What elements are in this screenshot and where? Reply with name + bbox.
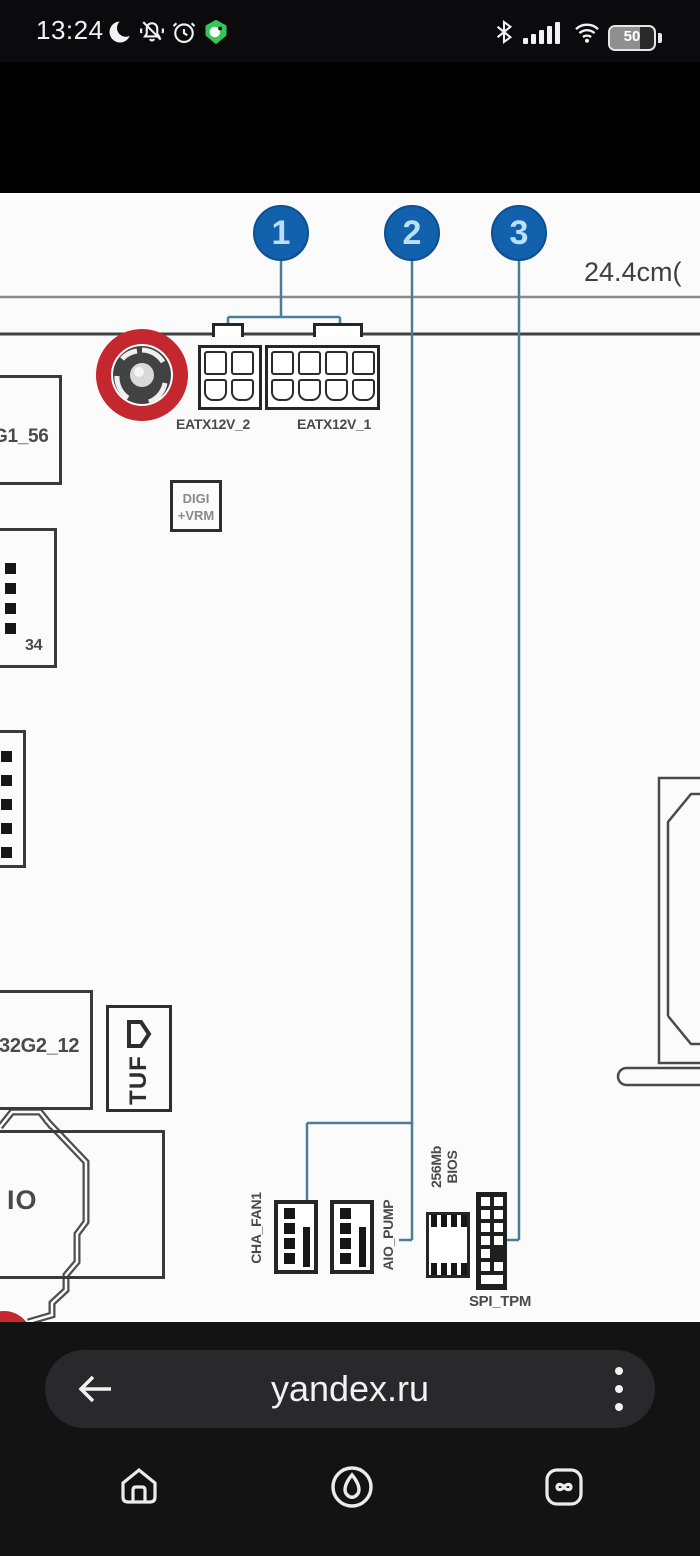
usb-header-top-label: G1_56	[0, 426, 49, 448]
usb-header-bottom-label: 32G2_12	[0, 1035, 79, 1058]
usb-header-bottom-box: 32G2_12	[0, 990, 93, 1110]
digi-vrm-chip: DIGI +VRM	[170, 480, 222, 532]
home-button-icon[interactable]	[115, 1463, 163, 1511]
menu-kebab-icon[interactable]	[615, 1367, 623, 1411]
bios-label-line2: BIOS	[444, 1136, 460, 1198]
webpage-motherboard-diagram: 1 2 3 24.4cm( EATX12V_2 EATX12V	[0, 193, 700, 1322]
eatx12v-1-label: EATX12V_1	[281, 416, 387, 432]
callout-3: 3	[491, 205, 547, 261]
battery-nub	[658, 33, 662, 43]
battery-icon: 50	[608, 25, 656, 51]
tuf-shield-icon	[126, 1019, 152, 1049]
digi-vrm-label-line1: DIGI	[173, 490, 219, 507]
browser-chrome: yandex.ru	[0, 1322, 700, 1556]
usb-header-mid-label: 34	[25, 637, 42, 655]
spi-tpm-label: SPI_TPM	[452, 1293, 548, 1310]
fan-badge-icon	[96, 329, 188, 421]
pcie-slot-outline	[618, 778, 700, 1085]
bios-label-line1: 256Mb	[428, 1136, 444, 1198]
battery-percent: 50	[610, 28, 654, 45]
wifi-icon	[570, 18, 604, 46]
yandex-browser-button-icon[interactable]	[328, 1463, 376, 1511]
tuf-logo-box: TUF	[106, 1005, 172, 1112]
do-not-disturb-moon-icon	[106, 18, 134, 46]
call-protect-app-icon	[202, 18, 230, 46]
audio-io-label: IO	[7, 1185, 38, 1216]
mute-bell-icon	[138, 18, 166, 46]
url-bar[interactable]: yandex.ru	[45, 1350, 655, 1428]
digi-vrm-label-line2: +VRM	[173, 507, 219, 524]
alarm-clock-icon	[170, 18, 198, 46]
tuf-logo-text: TUF	[125, 1055, 153, 1105]
status-bar: 13:24	[0, 0, 700, 62]
system-nav-bar	[0, 1445, 700, 1556]
callout-2: 2	[384, 205, 440, 261]
phone-screen: 13:24	[0, 0, 700, 1556]
front-panel-header-box	[0, 730, 26, 868]
url-text[interactable]: yandex.ru	[45, 1368, 655, 1410]
eatx12v-2-label: EATX12V_2	[160, 416, 266, 432]
bluetooth-icon	[490, 18, 518, 46]
bios-chip-label: 256Mb BIOS	[428, 1136, 460, 1198]
cellular-signal-icon	[522, 18, 562, 46]
partial-fan-badge	[0, 1311, 32, 1322]
cha-fan1-label: CHA_FAN1	[248, 1182, 264, 1274]
board-width-label: 24.4cm(	[584, 257, 700, 288]
usb-header-mid-box: 34	[0, 528, 57, 668]
tabs-button-icon[interactable]	[540, 1463, 588, 1511]
audio-io-box: IO	[0, 1130, 165, 1279]
usb-header-top-box: G1_56	[0, 375, 62, 485]
callout-1: 1	[253, 205, 309, 261]
aio-pump-label: AIO_PUMP	[380, 1189, 396, 1281]
clock-time: 13:24	[36, 15, 104, 46]
